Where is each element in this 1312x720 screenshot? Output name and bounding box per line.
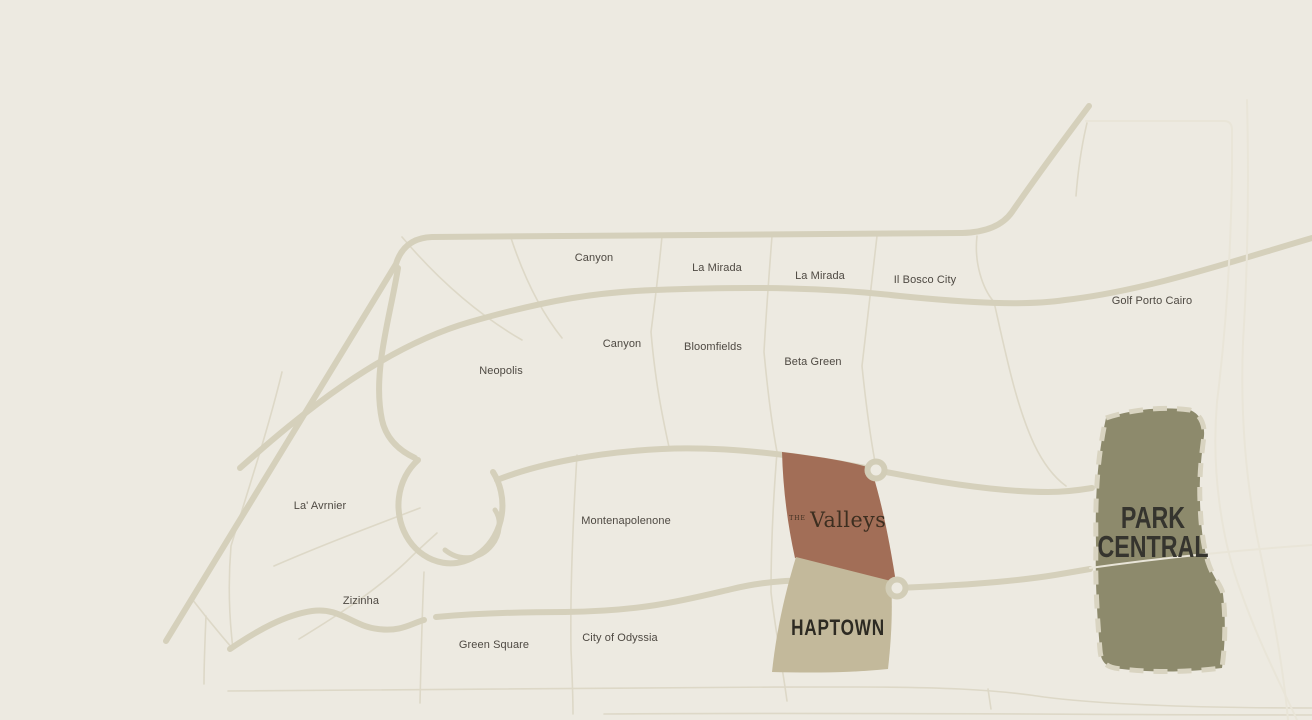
junction-marker-north bbox=[868, 462, 885, 479]
park-central-logo-line2: CENTRAL bbox=[1097, 532, 1208, 561]
the-valleys-logo-name: Valleys bbox=[810, 508, 886, 532]
the-valleys-logo-prefix: THE bbox=[789, 515, 806, 522]
zizinha-road-a bbox=[230, 610, 424, 649]
loop-feeder-road bbox=[379, 268, 415, 458]
ring-road bbox=[166, 106, 1089, 641]
park-central-logo[interactable]: PARK CENTRAL bbox=[1079, 503, 1227, 561]
district-label-la-mirada-west: La Mirada bbox=[692, 262, 742, 274]
map-canvas bbox=[0, 0, 1312, 720]
masterplan-map: Canyon La Mirada La Mirada Il Bosco City… bbox=[0, 0, 1312, 720]
haptown-east-road bbox=[897, 569, 1090, 588]
district-label-zizinha: Zizinha bbox=[343, 595, 379, 607]
district-label-beta-green: Beta Green bbox=[784, 356, 841, 368]
district-label-canyon-north: Canyon bbox=[575, 252, 614, 264]
district-label-canyon-south: Canyon bbox=[603, 338, 642, 350]
junction-marker-south bbox=[889, 580, 906, 597]
district-label-neopolis: Neopolis bbox=[479, 365, 523, 377]
district-label-green-square: Green Square bbox=[459, 639, 529, 651]
district-label-montenapolenone: Montenapolenone bbox=[581, 515, 671, 527]
loop-inner-road bbox=[445, 510, 499, 558]
district-label-city-of-odyssia: City of Odyssia bbox=[582, 632, 657, 644]
district-label-bloomfields: Bloomfields bbox=[684, 341, 742, 353]
haptown-logo[interactable]: HAPTOWN bbox=[791, 615, 885, 641]
district-label-la-mirada-east: La Mirada bbox=[795, 270, 845, 282]
district-label-golf-porto-cairo: Golf Porto Cairo bbox=[1112, 295, 1192, 307]
district-label-la-avrnier: La' Avrnier bbox=[294, 500, 347, 512]
the-valleys-logo[interactable]: THEValleys bbox=[789, 508, 886, 532]
park-central-logo-line1: PARK bbox=[1097, 503, 1208, 532]
district-label-il-bosco-city: Il Bosco City bbox=[894, 274, 956, 286]
